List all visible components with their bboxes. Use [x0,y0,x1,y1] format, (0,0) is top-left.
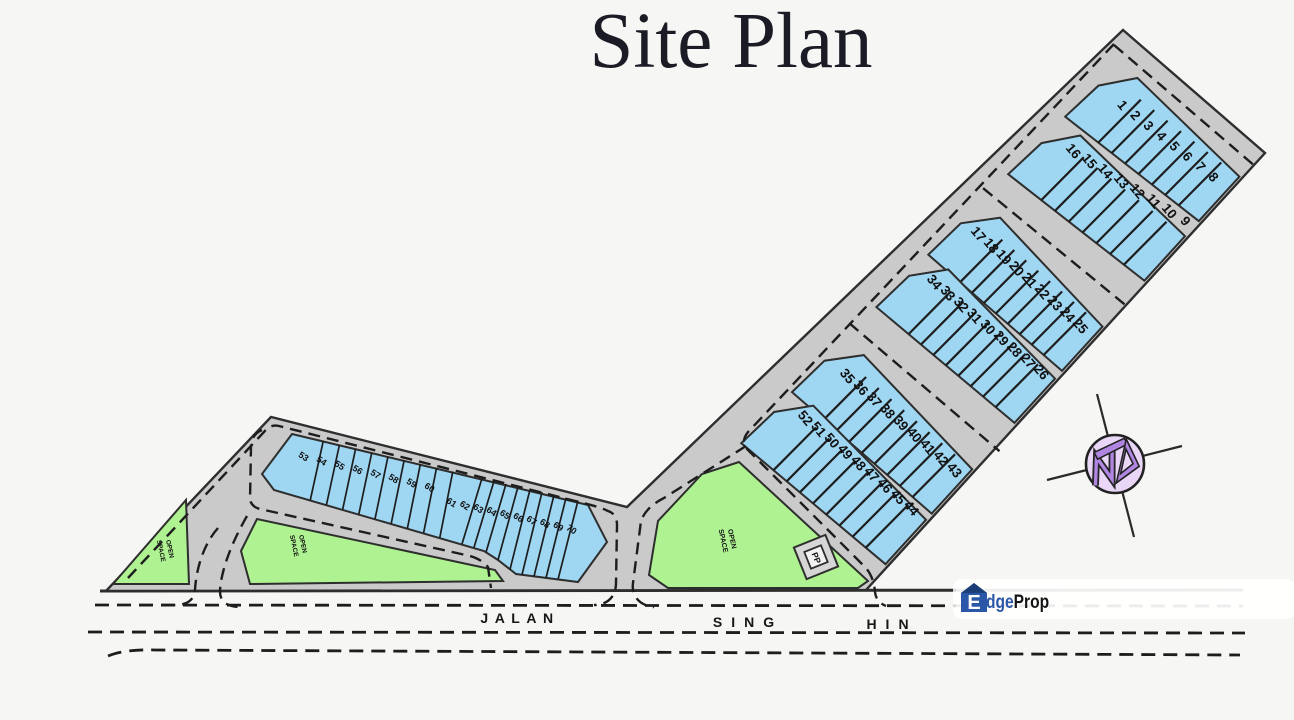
svg-text:E: E [967,592,980,614]
svg-text:SING: SING [713,614,783,630]
svg-text:JALAN: JALAN [480,610,559,626]
svg-text:dgeProp: dgeProp [986,591,1049,613]
svg-text:Site Plan: Site Plan [589,0,872,85]
svg-text:HIN: HIN [866,616,917,632]
